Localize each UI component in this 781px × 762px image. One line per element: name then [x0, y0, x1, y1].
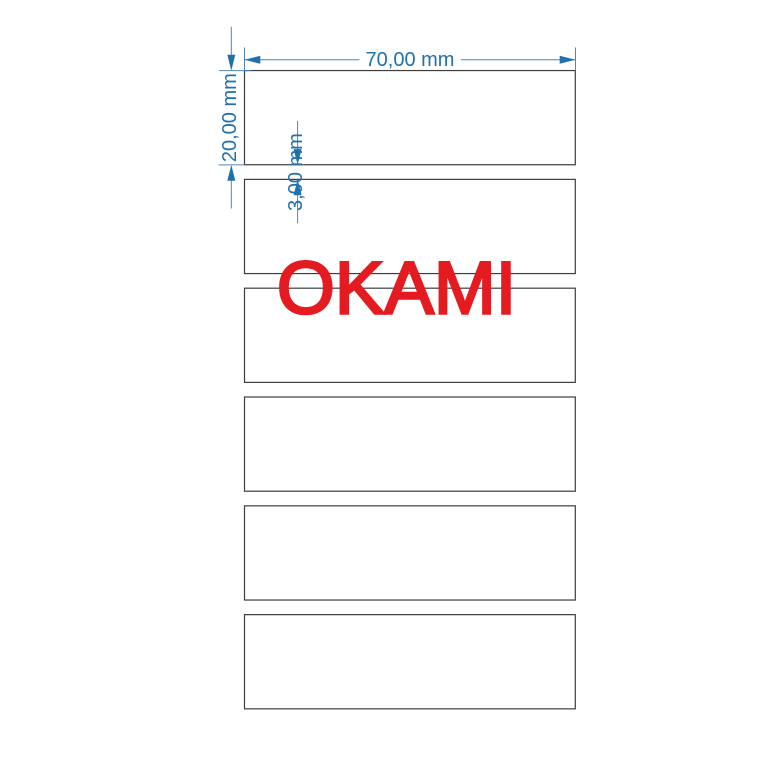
svg-text:20,00 mm: 20,00 mm	[219, 73, 241, 162]
svg-text:3,00 mm: 3,00 mm	[285, 133, 307, 211]
svg-text:OKAMI: OKAMI	[277, 246, 516, 329]
svg-text:70,00 mm: 70,00 mm	[366, 49, 455, 71]
